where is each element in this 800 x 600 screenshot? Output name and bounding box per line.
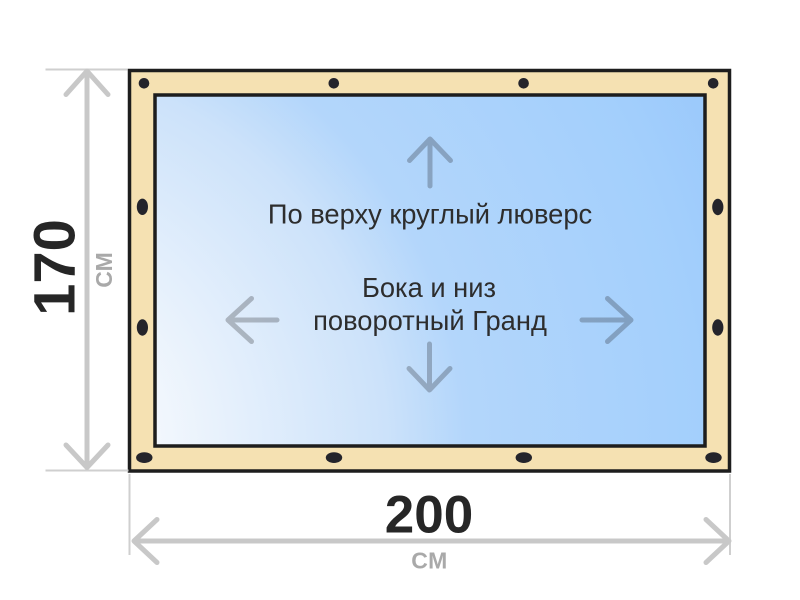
svg-text:СМ: СМ <box>411 548 447 574</box>
svg-text:Бока и низ: Бока и низ <box>362 272 496 303</box>
svg-text:170: 170 <box>23 219 88 316</box>
svg-text:СМ: СМ <box>91 252 117 287</box>
svg-text:200: 200 <box>385 485 473 544</box>
svg-text:поворотный Гранд: поворотный Гранд <box>313 305 547 336</box>
svg-text:По верху круглый люверс: По верху круглый люверс <box>268 199 592 230</box>
